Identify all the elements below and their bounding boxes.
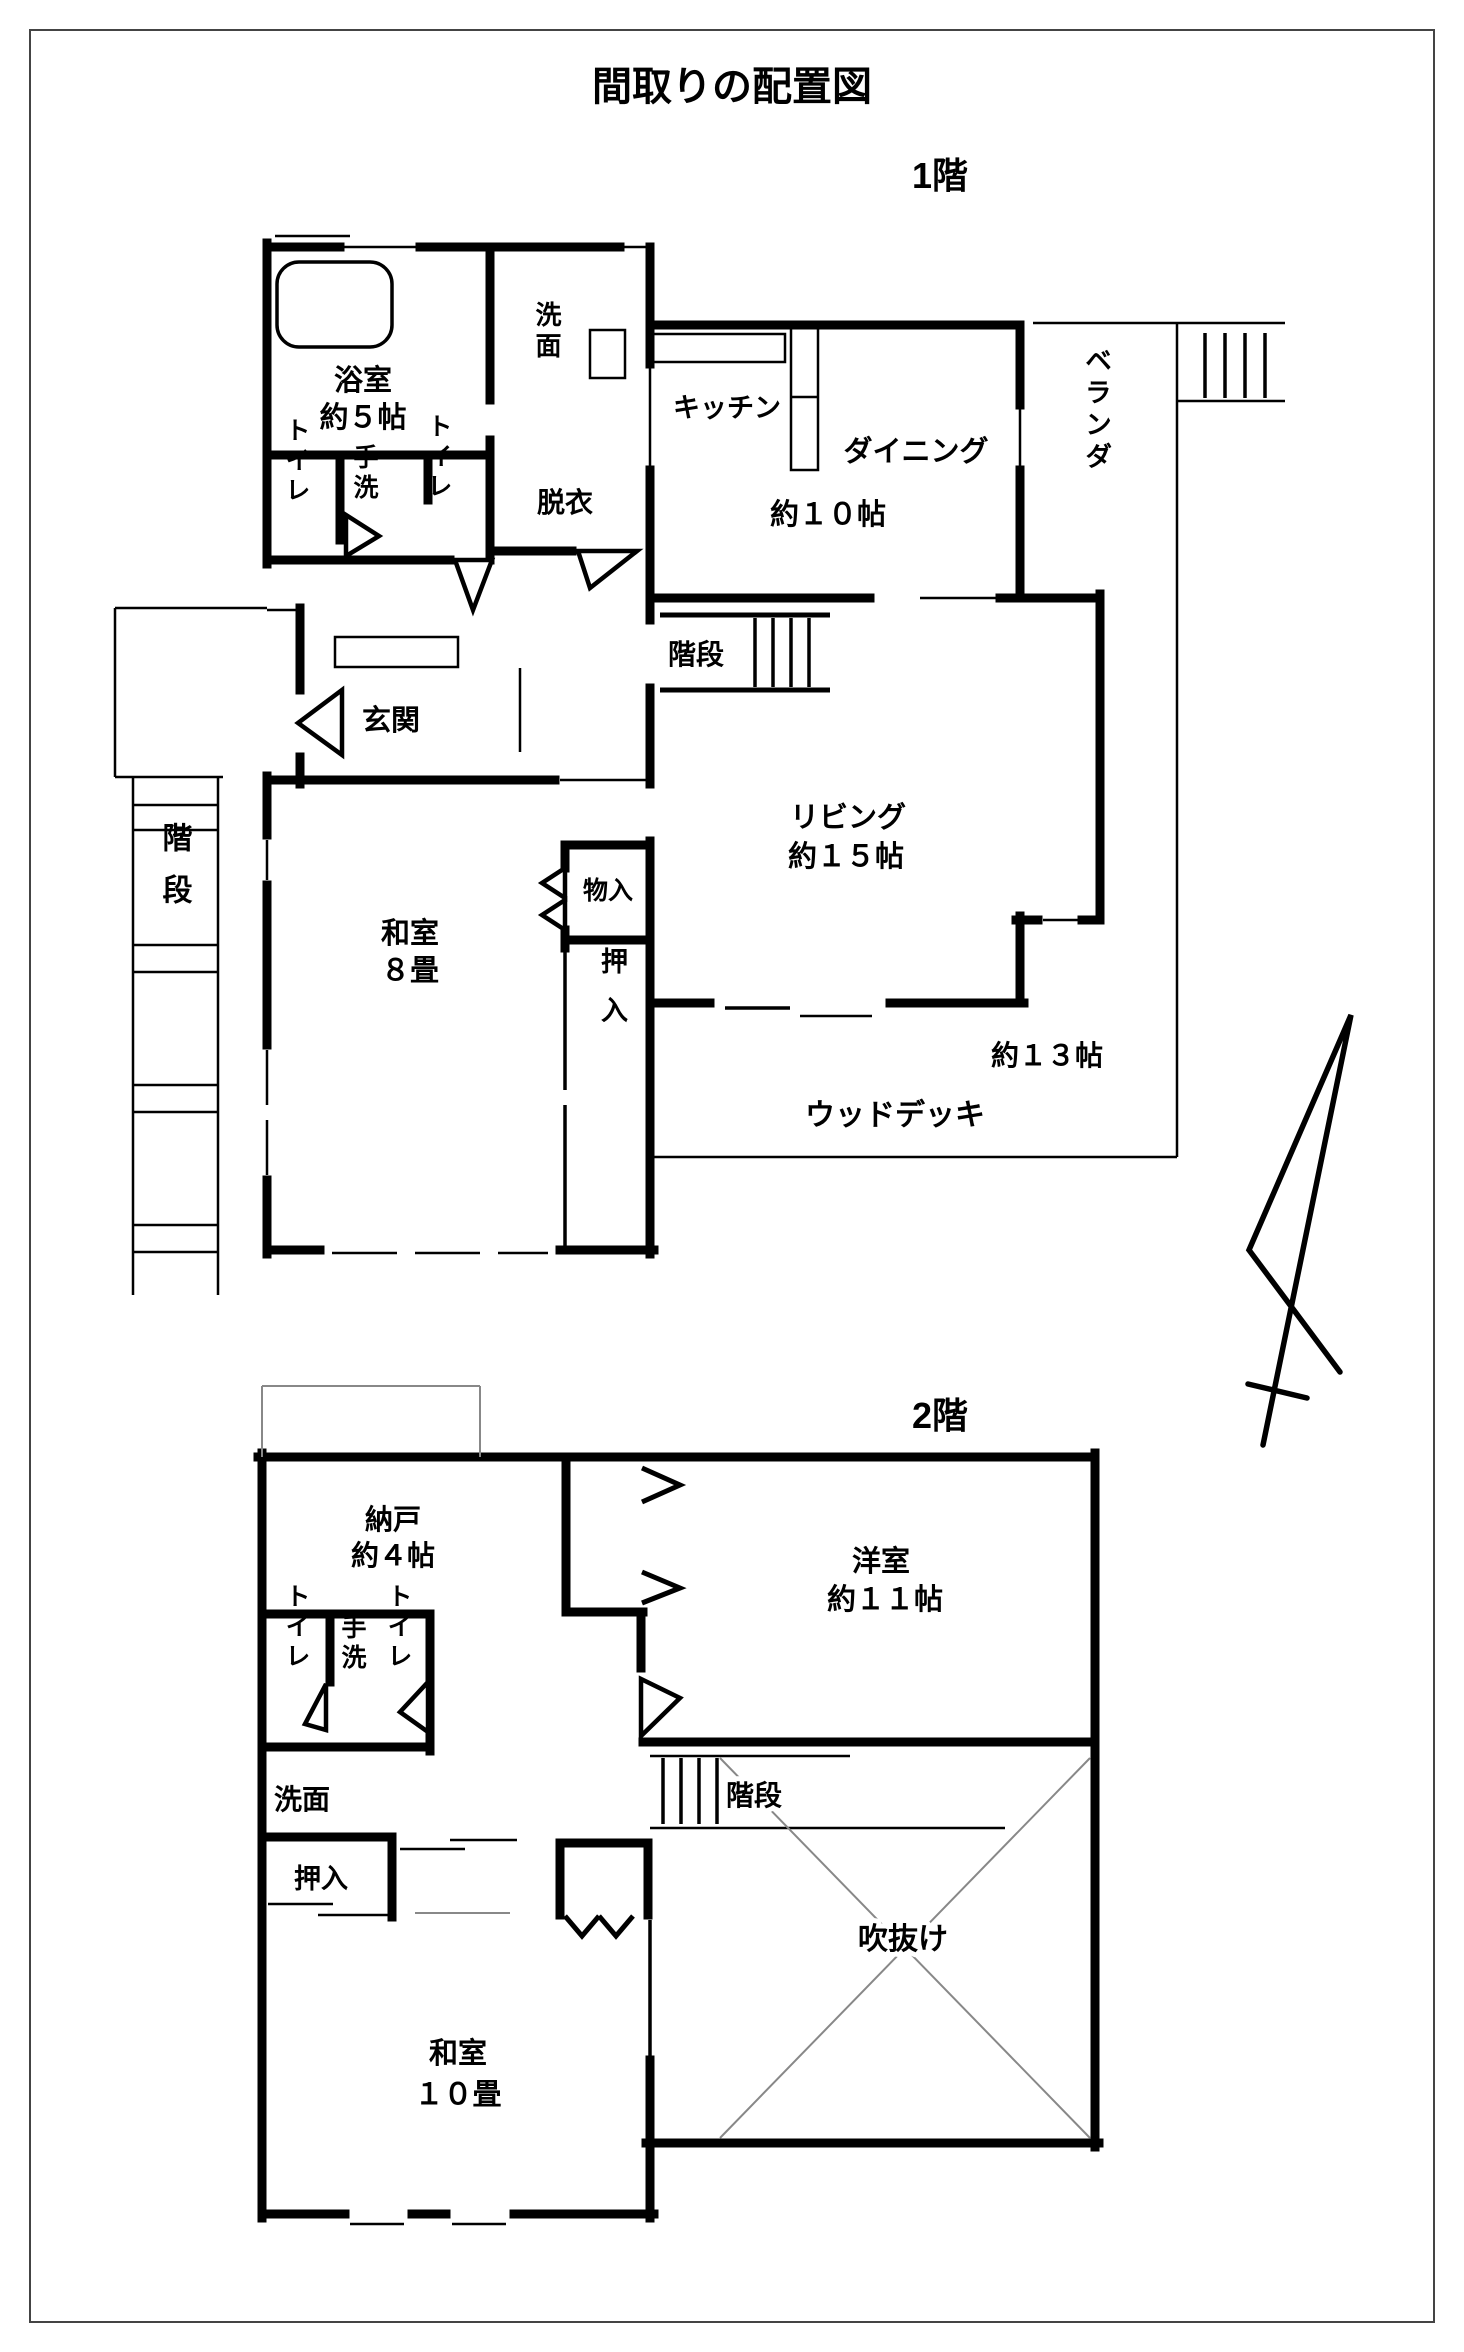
washbasin [590,330,625,378]
yoshitsu-door-icon [641,1679,680,1736]
room-label-stairs-2f: 階段 [726,1779,782,1811]
room-label-tearai-1f: 手洗 [350,444,379,504]
roof-outline-and-void-cross [262,1386,1090,2138]
room-label-bath: 浴室 [334,363,392,397]
room-label-washitsu-2f: 和室 [429,2036,487,2070]
room-label-washitsu-1f-size: ８畳 [381,955,439,987]
room-label-washitsu-2f-size: １０畳 [414,2079,501,2111]
room-label-senmen-1f: 洗面 [532,301,562,363]
shoe-cabinet [335,637,458,667]
floorplan-page: 間取りの配置図 1階 2階 浴室 約５帖 洗面 脱衣 トイレ 手洗 トイレ キッ… [0,0,1464,2352]
room-label-toilet-left-1f: トイレ [282,417,310,507]
room-label-yoshitsu: 洋室 [852,1544,910,1578]
north-arrow-icon [1248,1015,1351,1445]
room-label-fukinuke: 吹抜け [858,1923,948,1956]
room-label-oshiire-2f: 押入 [294,1864,348,1894]
room-label-toilet-right-1f: トイレ [424,413,452,503]
room-label-oshiire-1f: 押入 [597,947,628,1045]
floor1-label: 1階 [912,155,968,196]
toilet-right-door-icon-1f [455,560,492,610]
room-label-dining: ダイニング [843,434,988,468]
room-label-tearai-2f: 手洗 [338,1614,367,1674]
room-label-bath-size: 約５帖 [319,400,406,434]
room-label-dining-size: 約１０帖 [770,497,886,531]
room-label-yoshitsu-size: 約１１帖 [827,1582,943,1616]
monoire-door-icon-upper [542,868,565,898]
room-label-datsui: 脱衣 [537,486,593,518]
room-label-senmen-2f: 洗面 [274,1784,330,1815]
room-label-deck-size: 約１３帖 [991,1039,1103,1071]
walls-thin-2f [268,1756,1005,2224]
room-label-washitsu-1f: 和室 [381,916,439,950]
kitchen-counter [652,334,785,362]
washitsu-door-chevron-icon-left [565,1916,599,1936]
walls-medium-2f [650,1758,717,2060]
room-label-kitchen: キッチン [673,393,781,423]
room-label-toilet-left-2f: トイレ [282,1583,310,1673]
room-label-living: リビング [790,801,906,834]
toilet-left-door-icon-1f [346,515,379,556]
floorplan-canvas: 間取りの配置図 1階 2階 浴室 約５帖 洗面 脱衣 トイレ 手洗 トイレ キッ… [0,0,1464,2352]
room-label-genkan: 玄関 [362,703,420,737]
floor2-label: 2階 [912,1395,968,1436]
room-label-deck: ウッドデッキ [805,1098,985,1132]
genkan-door-icon [298,690,342,755]
page-title: 間取りの配置図 [592,65,872,109]
toilet-right-door-icon-2f [400,1682,428,1732]
monoire-door-icon-lower [542,900,565,930]
toilet-left-door-icon-2f [305,1684,326,1730]
room-label-monoire: 物入 [583,877,633,905]
room-label-nando-size: 約４帖 [351,1539,435,1571]
closet-door-chevron-icon-lower [642,1572,680,1603]
washitsu-door-chevron-icon-right [599,1916,633,1936]
room-label-nando: 納戸 [365,1503,421,1535]
room-label-stairs-mid-1f: 階段 [668,638,724,670]
bathtub [277,262,392,347]
room-label-stairs-outside: 階段 [158,822,193,926]
datsui-door-icon [578,551,637,588]
closet-door-chevron-icon-upper [642,1468,680,1502]
room-label-living-size: 約１５帖 [788,839,904,873]
room-label-toilet-right-2f: トイレ [384,1583,412,1673]
room-label-veranda: ベランダ [1081,346,1111,474]
